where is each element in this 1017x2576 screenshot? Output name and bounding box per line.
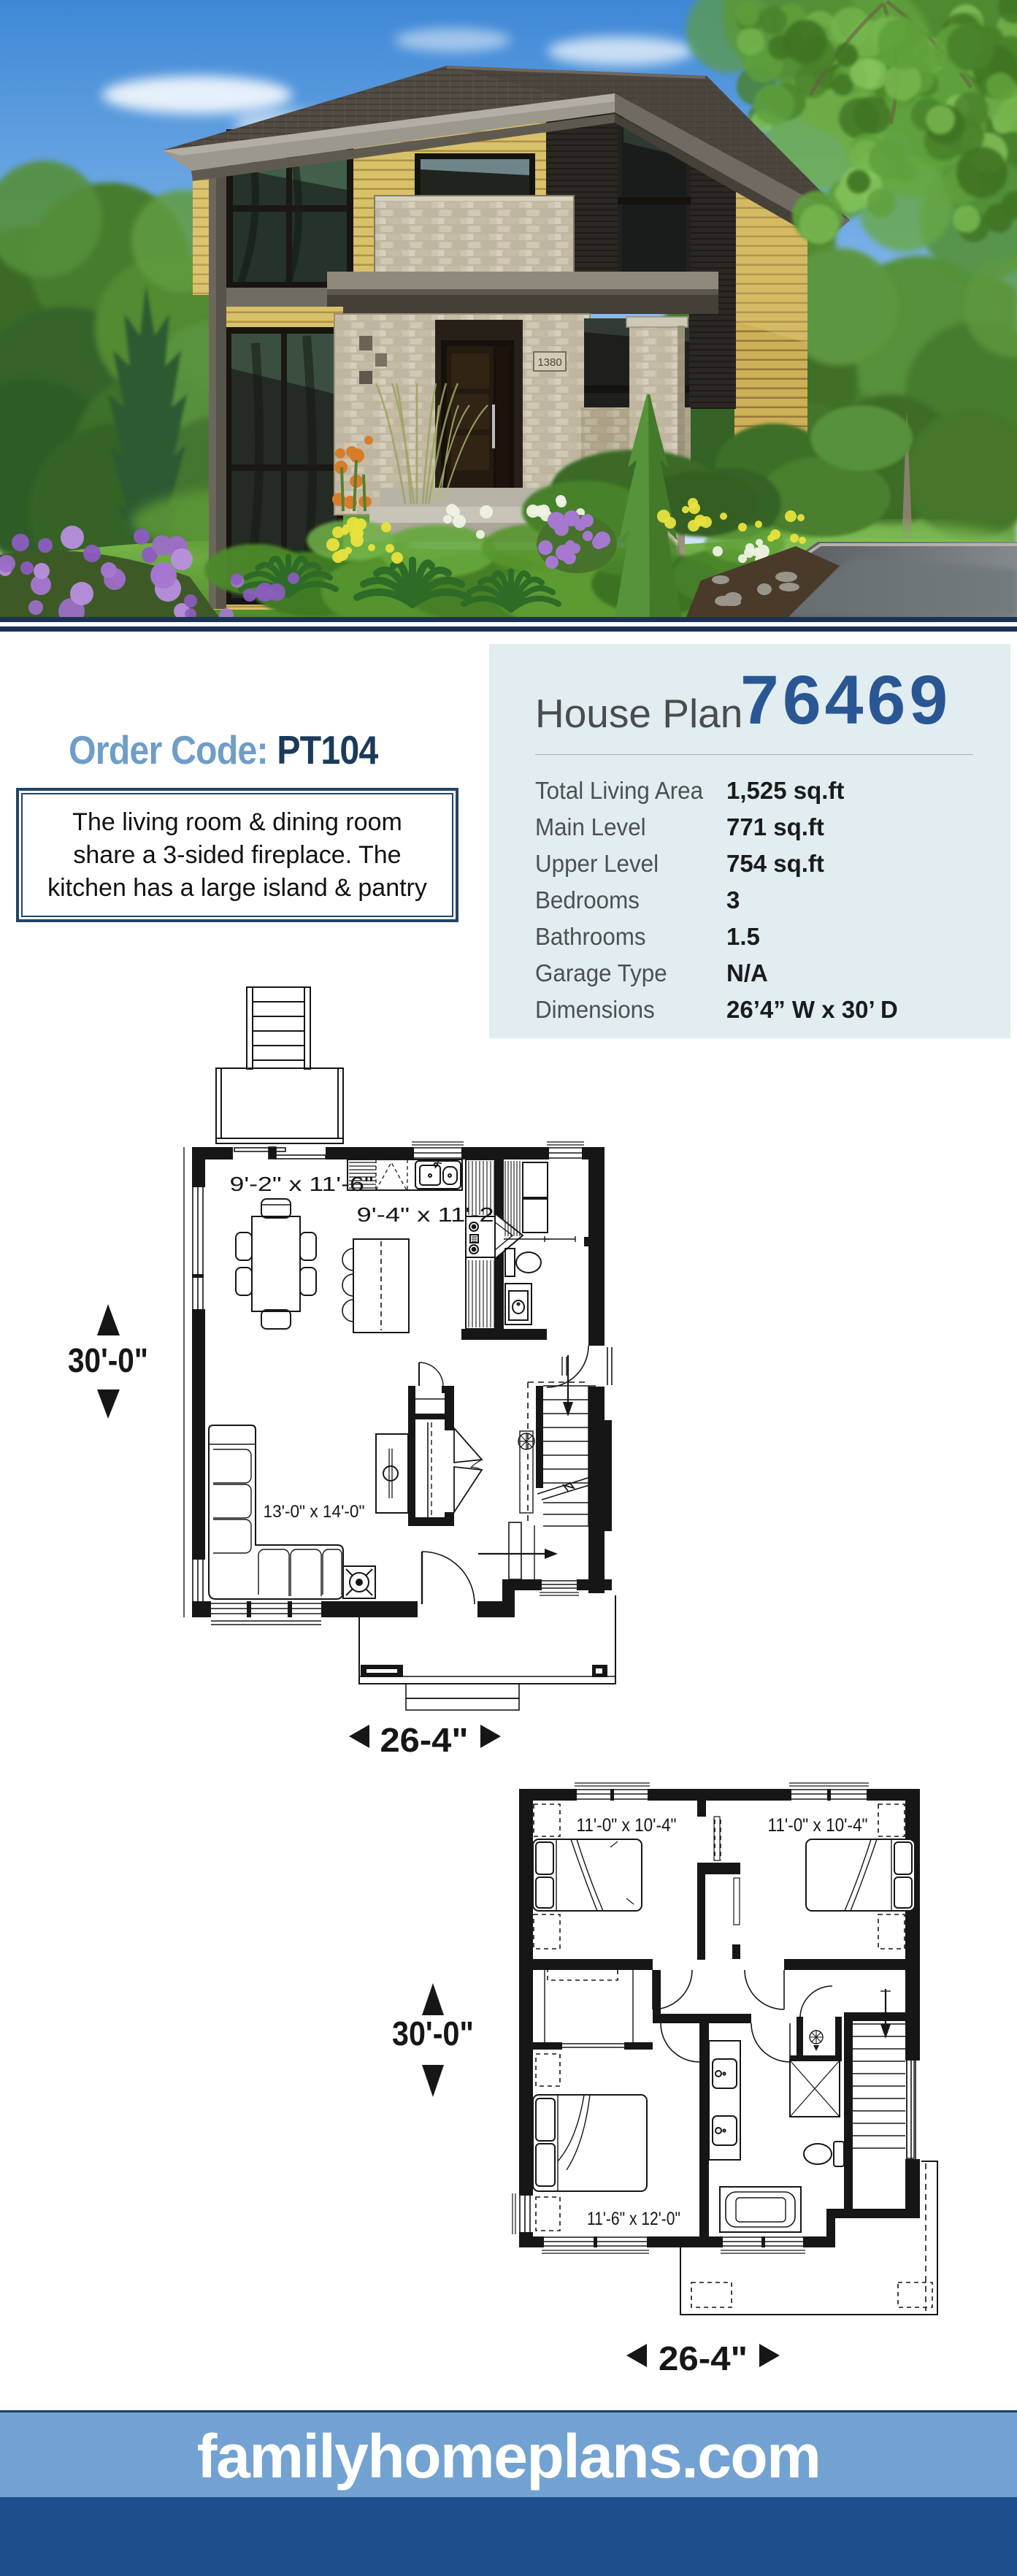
svg-text:26-4": 26-4" — [659, 2339, 748, 2377]
svg-text:9'-4" x 11'-2": 9'-4" x 11'-2" — [357, 1203, 504, 1226]
svg-text:13'-0" x 14'-0": 13'-0" x 14'-0" — [264, 1502, 365, 1522]
svg-text:1380: 1380 — [537, 356, 561, 369]
svg-text:9'-2" x 11'-6": 9'-2" x 11'-6" — [230, 1173, 374, 1195]
svg-text:26-4": 26-4" — [380, 1721, 469, 1759]
svg-text:11'-0" x 10'-4": 11'-0" x 10'-4" — [768, 1815, 868, 1836]
svg-text:11'-6" x 12'-0": 11'-6" x 12'-0" — [587, 2209, 680, 2229]
svg-text:30'-0": 30'-0" — [68, 1341, 148, 1379]
svg-text:11'-0" x 10'-4": 11'-0" x 10'-4" — [577, 1815, 677, 1836]
svg-text:30'-0": 30'-0" — [392, 2015, 474, 2052]
